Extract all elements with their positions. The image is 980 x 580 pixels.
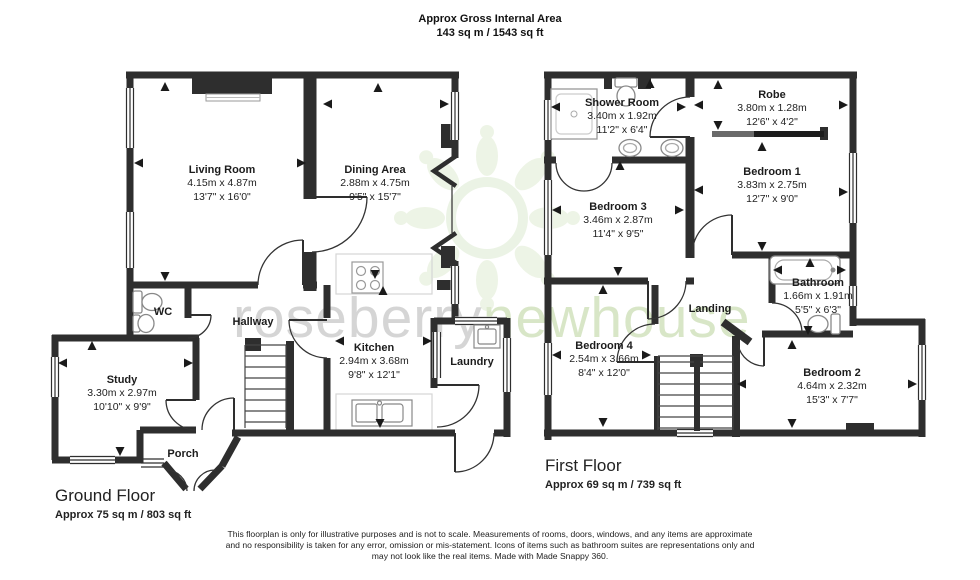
shower-room-sink-icons xyxy=(619,140,683,157)
room-label-study: Study 3.30m x 2.97m 10'10" x 9'9" xyxy=(87,373,156,414)
room-label-wc: WC xyxy=(154,305,172,319)
room-label-bedroom-2: Bedroom 2 4.64m x 2.32m 15'3" x 7'7" xyxy=(797,366,866,407)
room-label-laundry: Laundry xyxy=(450,355,493,369)
room-label-shower-room: Shower Room 3.40m x 1.92m 11'2" x 6'4" xyxy=(585,96,659,137)
fireplace-icon xyxy=(206,94,260,101)
room-label-bathroom: Bathroom 1.66m x 1.91m 5'5" x 6'3" xyxy=(783,276,852,317)
room-label-bedroom-1: Bedroom 1 3.83m x 2.75m 12'7" x 9'0" xyxy=(737,165,806,206)
stairs-first xyxy=(658,356,733,431)
bathroom-toilet-icon xyxy=(808,314,840,334)
ground-floor-title: Ground Floor Approx 75 sq m / 803 sq ft xyxy=(55,486,191,521)
room-label-bedroom-4: Bedroom 4 2.54m x 3.66m 8'4" x 12'0" xyxy=(569,339,638,380)
laundry-sink-icon xyxy=(474,325,500,348)
first-floor-title: First Floor Approx 69 sq m / 739 sq ft xyxy=(545,456,681,491)
room-label-robe: Robe 3.80m x 1.28m 12'6" x 4'2" xyxy=(737,88,806,129)
floorplan-canvas: roseberrynewhouse Approx Gross Internal … xyxy=(0,0,980,580)
room-label-dining-area: Dining Area 2.88m x 4.75m 9'5" x 15'7" xyxy=(340,163,409,204)
walls-first-stairs xyxy=(723,322,750,437)
wardrobe-rail-icon xyxy=(712,131,824,137)
room-label-kitchen: Kitchen 2.94m x 3.68m 9'8" x 12'1" xyxy=(339,341,408,382)
title-line-2: 143 sq m / 1543 sq ft xyxy=(0,26,980,40)
chimney-breast-bed2 xyxy=(846,423,874,433)
stairs-ground xyxy=(245,345,286,428)
ground-floor-plan xyxy=(51,72,512,491)
chimney-breast xyxy=(192,78,272,94)
wc-sink-icon xyxy=(133,315,154,333)
room-label-landing: Landing xyxy=(689,302,732,316)
title-line-1: Approx Gross Internal Area xyxy=(0,12,980,26)
stove-icon xyxy=(352,262,383,293)
room-label-hallway: Hallway xyxy=(233,315,274,329)
room-label-living-room: Living Room 4.15m x 4.87m 13'7" x 16'0" xyxy=(187,163,256,204)
room-label-bedroom-3: Bedroom 3 3.46m x 2.87m 11'4" x 9'5" xyxy=(583,200,652,241)
room-label-porch: Porch xyxy=(167,447,198,461)
disclaimer-text: This floorplan is only for illustrative … xyxy=(0,529,980,562)
gross-internal-area-title: Approx Gross Internal Area 143 sq m / 15… xyxy=(0,12,980,40)
